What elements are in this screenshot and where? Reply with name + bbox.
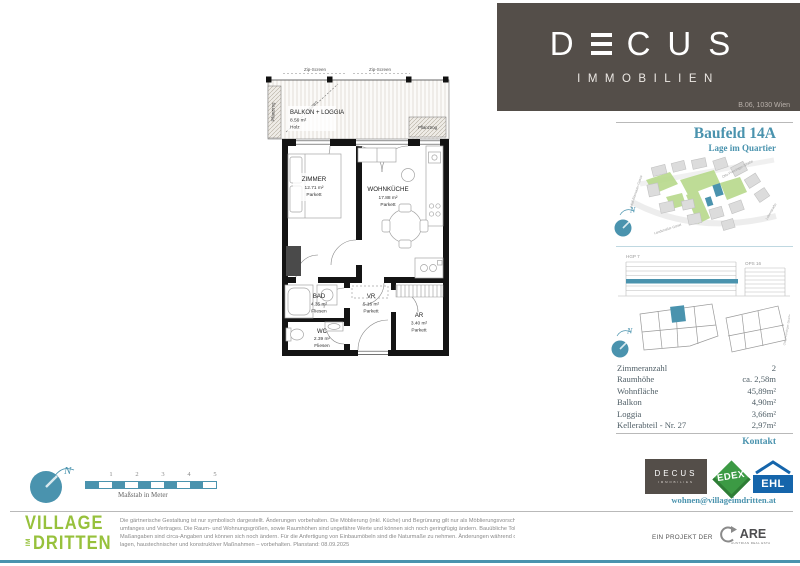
highlighted-floor <box>626 279 738 284</box>
village-logo-line1: VILLAGE <box>25 514 112 533</box>
scale-tick: 5 <box>207 471 223 478</box>
north-compass-icon: N <box>607 324 637 362</box>
room-floor: Parkett <box>306 192 322 198</box>
planter-left-label: Pflanztrog <box>271 102 276 122</box>
detail-label: Zimmeranzahl <box>617 363 667 374</box>
room-area: 12.71 m² <box>305 185 324 191</box>
room-area: 5.16 m² <box>363 302 380 308</box>
detail-value: 45,89m² <box>747 386 776 397</box>
room-name: WC <box>317 329 328 335</box>
room-floor: Holz <box>290 125 300 131</box>
detail-label: Loggia <box>617 409 641 420</box>
table-row: Raumhöhe ca. 2,58m <box>617 374 776 385</box>
north-compass-icon: N <box>610 203 640 241</box>
page-title: Baufeld 14A <box>600 125 776 143</box>
scale-label: Maßstab in Meter <box>118 491 168 499</box>
footer-divider <box>10 511 793 512</box>
room-name: WOHNKÜCHE <box>367 186 408 193</box>
decus-e-bars-icon <box>591 33 612 55</box>
detail-label: Raumhöhe <box>617 374 654 385</box>
ehl-logo: EHL <box>753 459 793 495</box>
scale-bar <box>85 481 217 489</box>
contact-link[interactable]: Kontakt <box>600 437 776 447</box>
disclaimer-text: Die gärtnerische Gestaltung ist nur symb… <box>120 517 515 549</box>
unit-details-table: Zimmeranzahl 2 Raumhöhe ca. 2,58m Wohnfl… <box>617 363 776 431</box>
unit-address: B.06, 1030 Wien <box>738 102 790 109</box>
are-logo-subtext: AUSTRIAN REAL ESTATE <box>731 541 770 545</box>
street-label: Landstraßer Gürtel <box>654 223 683 236</box>
table-row: Balkon 4,90m² <box>617 397 776 408</box>
are-logo-text: ARE <box>740 527 766 541</box>
table-row: Zimmeranzahl 2 <box>617 363 776 374</box>
detail-value: 2,97m² <box>752 420 776 431</box>
room-floor: Parkett <box>363 309 379 315</box>
floor-outlines: Otto-Preminger-Straße <box>618 300 790 358</box>
detail-value: 4,90m² <box>752 397 776 408</box>
highlighted-unit <box>670 305 686 323</box>
floor-plan: Zip-Screen Zip-Screen Screen Pflanztrog … <box>255 60 460 370</box>
plan-sheet: D CUS IMMOBILIEN B.06, 1030 Wien <box>0 0 800 566</box>
ehl-logo-text: EHL <box>753 475 793 493</box>
room-area: 4.35 m² <box>311 302 328 308</box>
room-label: BALKON + LOGGIA <box>290 110 344 116</box>
decus-letters-cus: CUS <box>627 25 748 63</box>
scale-tick: 3 <box>155 471 171 478</box>
room-floor: Parkett <box>411 328 427 334</box>
decus-logo: DECUS IMMOBILIEN <box>645 459 707 494</box>
room-name: ZIMMER <box>302 176 327 183</box>
room-floor: Fliesen <box>311 309 327 315</box>
scale-tick: 2 <box>129 471 145 478</box>
room-name: VR <box>367 294 376 300</box>
decus-logo-text: DECUS <box>654 469 697 478</box>
table-row: Kellerabteil - Nr. 27 2,97m² <box>617 420 776 431</box>
divider <box>616 122 793 123</box>
section-label-right: OPS 16 <box>745 261 762 266</box>
scale-tick: 4 <box>181 471 197 478</box>
zip-screen-label-left: Zip-Screen <box>304 67 327 72</box>
north-label: N <box>629 206 636 215</box>
edex-logo: EDEX <box>710 458 752 500</box>
village-logo-line2: DRITTEN <box>33 534 112 553</box>
bottom-accent-bar <box>0 560 800 563</box>
room-area: 3.40 m² <box>411 321 428 327</box>
brand-subtitle: IMMOBILIEN <box>497 73 800 85</box>
village-logo-im: IM <box>26 538 33 546</box>
table-row: Loggia 3,66m² <box>617 409 776 420</box>
north-compass-icon: N <box>24 461 80 507</box>
divider <box>616 433 793 434</box>
detail-label: Wohnfläche <box>617 386 658 397</box>
ehl-roof-icon <box>753 459 793 475</box>
are-logo: ARE AUSTRIAN REAL ESTATE <box>718 524 770 550</box>
decus-logo-subtext: IMMOBILIEN <box>658 480 694 484</box>
quartier-map: Otto-Preminger-Straße Adolf-Blamauer-Gas… <box>626 150 790 244</box>
disclaimer-line: Maßangaben sind circa-Angaben und können… <box>120 533 515 541</box>
section-label-left: HGP 7 <box>626 254 640 259</box>
project-credit: EIN PROJEKT DER ARE AUSTRIAN REAL ESTATE <box>652 524 770 550</box>
decus-letter-d: D <box>550 25 574 63</box>
room-area: 17.88 m² <box>379 195 398 201</box>
village-im-dritten-logo: VILLAGE IM DRITTEN <box>25 514 112 550</box>
north-label: N <box>626 327 633 336</box>
disclaimer-line: lagen, haustechnischer und konstruktiver… <box>120 541 515 549</box>
table-row: Wohnfläche 45,89m² <box>617 386 776 397</box>
room-name: AR <box>415 313 424 319</box>
planter-right-label: Pflanztrog <box>418 125 438 130</box>
detail-label: Kellerabteil - Nr. 27 <box>617 420 686 431</box>
contact-email[interactable]: wohnen@villageimdritten.at <box>600 495 776 505</box>
building-sections: HGP 7 OPS 16 <box>618 250 790 302</box>
scale-tick: 1 <box>103 471 119 478</box>
room-floor: Parkett <box>380 202 396 208</box>
project-prefix: EIN PROJEKT DER <box>652 534 713 541</box>
detail-value: ca. 2,58m <box>742 374 776 385</box>
decus-wordmark: D CUS <box>497 25 800 63</box>
brand-header: D CUS IMMOBILIEN B.06, 1030 Wien <box>497 3 800 111</box>
disclaimer-line: umfanges und Vertrages. Die Raum- und Wo… <box>120 525 515 533</box>
wardrobe <box>286 246 301 276</box>
disclaimer-line: Die gärtnerische Gestaltung ist nur symb… <box>120 517 515 525</box>
room-area: 2.39 m² <box>314 336 331 342</box>
north-label: N <box>63 465 72 477</box>
room-name: BAD <box>313 294 326 300</box>
divider <box>616 246 793 247</box>
detail-value: 2 <box>772 363 776 374</box>
room-area: 8.56 m² <box>290 118 307 124</box>
zip-screen-label-right: Zip-Screen <box>369 67 392 72</box>
detail-label: Balkon <box>617 397 642 408</box>
room-floor: Fliesen <box>314 343 330 349</box>
detail-value: 3,66m² <box>752 409 776 420</box>
